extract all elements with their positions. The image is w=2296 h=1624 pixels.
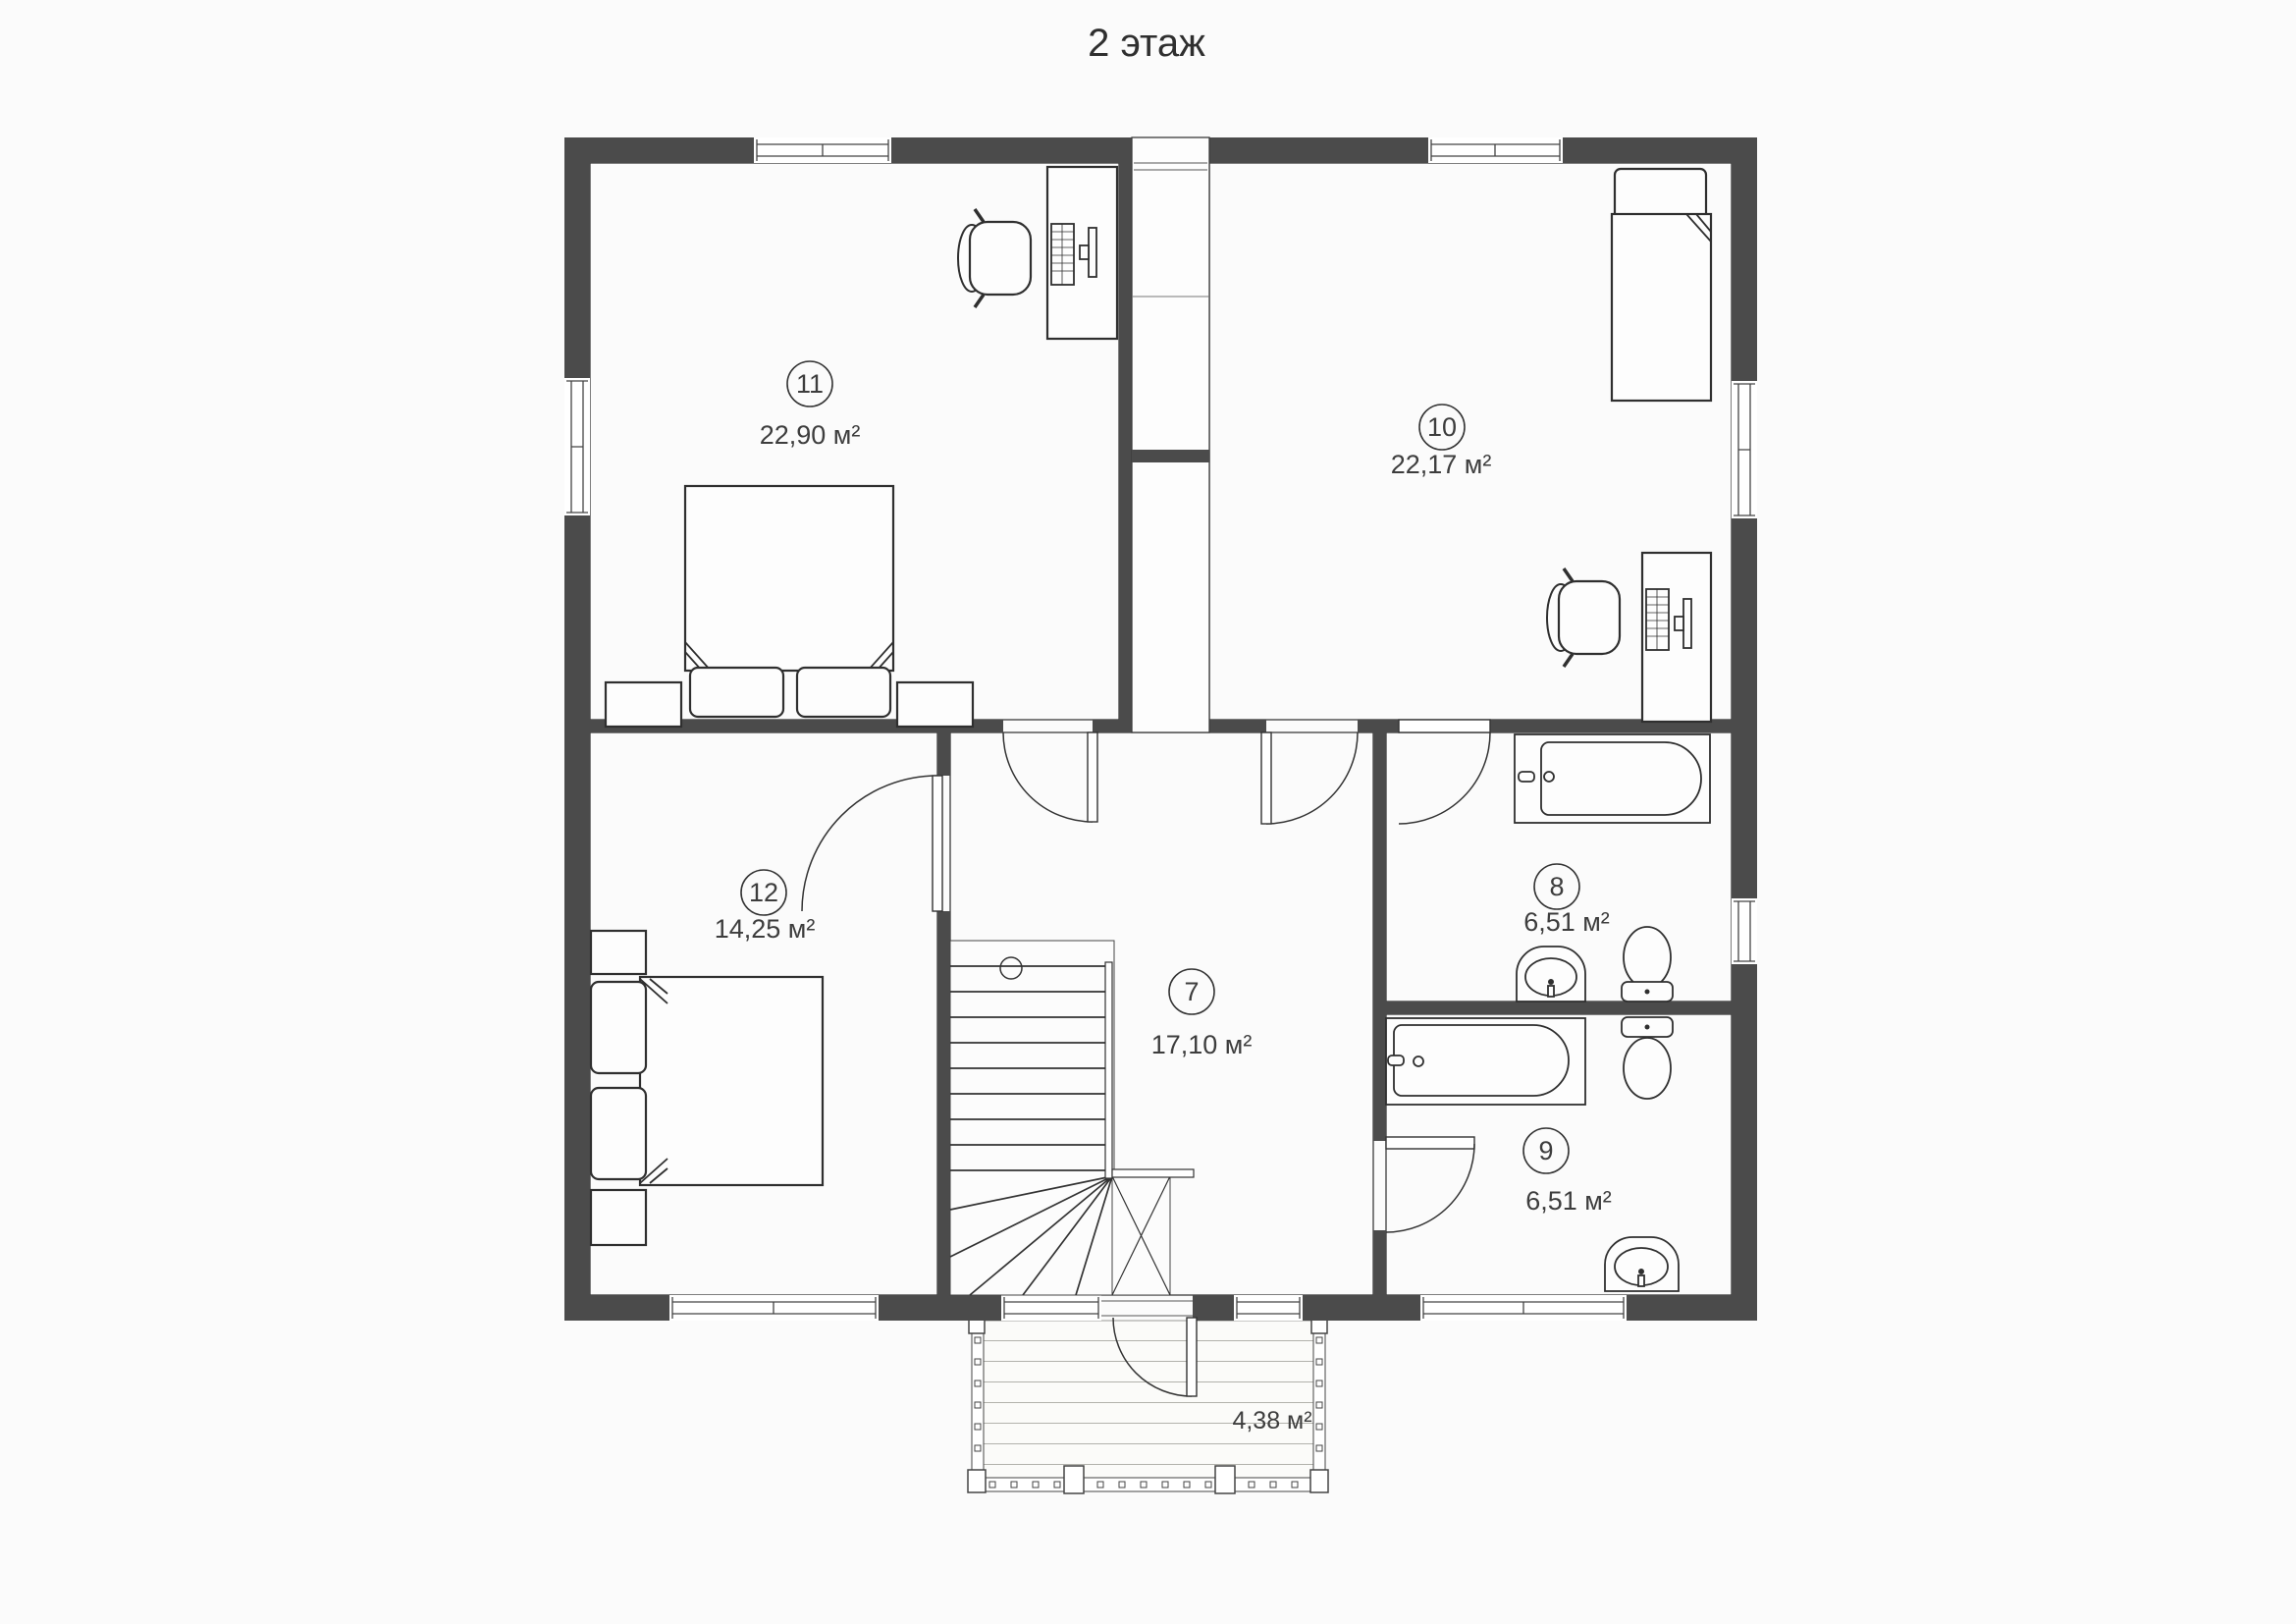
- pillow: [591, 1088, 646, 1179]
- shaft-niche: [1132, 137, 1209, 732]
- door-bedroom-12: [802, 776, 942, 911]
- window-bedroom-10-top: [1428, 137, 1563, 163]
- window-bedroom-10-right: [1732, 381, 1757, 518]
- sink: [1517, 947, 1585, 1001]
- keyboard: [1051, 224, 1074, 285]
- room-number: 11: [796, 369, 824, 399]
- door-bathroom-9: [1386, 1137, 1474, 1232]
- window-bathroom-8-right: [1732, 898, 1757, 964]
- floor-plan-canvas: 2 этаж: [0, 0, 2296, 1624]
- room-number: 10: [1427, 412, 1457, 442]
- bed-blanket: [640, 977, 823, 1185]
- room-number: 9: [1538, 1136, 1553, 1165]
- nightstand: [897, 682, 973, 727]
- room-label-8: 8 6,51 м²: [1523, 864, 1610, 937]
- toilet: [1622, 927, 1673, 1001]
- balcony-threshold: [1101, 1301, 1193, 1316]
- room-area: 22,17 м²: [1391, 450, 1492, 479]
- room-number: 7: [1184, 977, 1199, 1006]
- room-label-9: 9 6,51 м²: [1523, 1128, 1612, 1216]
- faucet: [1388, 1056, 1404, 1065]
- stair-railing-horizontal: [1112, 1169, 1194, 1177]
- drain: [1544, 772, 1554, 782]
- room-label-10: 10 22,17 м²: [1391, 405, 1492, 479]
- nightstand: [606, 682, 681, 727]
- sink: [1605, 1237, 1679, 1291]
- bathtub: [1386, 1018, 1585, 1105]
- bed-blanket: [1612, 214, 1711, 401]
- drain: [1414, 1056, 1423, 1066]
- room-label-11: 11 22,90 м²: [760, 361, 861, 450]
- faucet: [1519, 772, 1534, 782]
- pillow: [690, 668, 783, 717]
- room-area: 6,51 м²: [1523, 907, 1610, 937]
- balcony: [968, 1301, 1328, 1493]
- room-number: 12: [749, 878, 778, 907]
- window-bedroom-11-left: [564, 378, 590, 515]
- tap: [1638, 1275, 1644, 1286]
- bed-blanket: [685, 486, 893, 671]
- bedroom-12-furniture: [591, 931, 823, 1245]
- door-bedroom-10: [1261, 732, 1358, 824]
- room-area: 6,51 м²: [1525, 1186, 1612, 1216]
- balcony-deck: [984, 1321, 1313, 1478]
- bedroom-10-furniture: [1547, 169, 1711, 722]
- keyboard: [1646, 589, 1669, 650]
- room-number: 8: [1549, 872, 1564, 901]
- window-bedroom-11-top: [754, 137, 891, 163]
- staircase: [950, 941, 1194, 1295]
- window-balcony-left: [1001, 1295, 1101, 1321]
- page-title: 2 этаж: [1088, 22, 1205, 65]
- room-label-12: 12 14,25 м²: [715, 870, 816, 944]
- balcony-area-label: 4,38 м²: [1232, 1407, 1311, 1435]
- office-chair: [1547, 568, 1620, 667]
- nightstand: [591, 1190, 646, 1245]
- office-chair: [958, 209, 1031, 307]
- tap: [1548, 986, 1554, 997]
- bathroom-9-fixtures: [1386, 1017, 1679, 1291]
- stair-well: [950, 941, 1114, 1295]
- toilet: [1622, 1017, 1673, 1099]
- window-balcony-right: [1234, 1295, 1303, 1321]
- room-area: 14,25 м²: [715, 914, 816, 944]
- bedroom-11-furniture: [606, 167, 1117, 727]
- room-label-7: 7 17,10 м²: [1151, 969, 1253, 1059]
- door-bathroom-8: [1399, 720, 1490, 824]
- bathtub: [1515, 734, 1710, 823]
- room-area: 22,90 м²: [760, 420, 861, 450]
- window-bathroom-9-bottom: [1420, 1295, 1627, 1321]
- pillow: [591, 982, 646, 1073]
- door-bedroom-11: [1003, 732, 1097, 822]
- pillow: [797, 668, 890, 717]
- nightstand: [591, 931, 646, 974]
- stair-railing-vertical: [1105, 962, 1112, 1178]
- room-area: 17,10 м²: [1151, 1030, 1253, 1059]
- window-bedroom-12-bottom: [669, 1295, 879, 1321]
